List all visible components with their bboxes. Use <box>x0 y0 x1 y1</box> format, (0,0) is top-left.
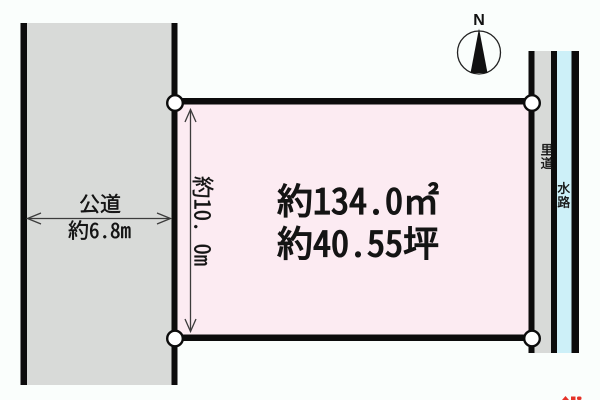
svg-text:N: N <box>473 12 485 29</box>
